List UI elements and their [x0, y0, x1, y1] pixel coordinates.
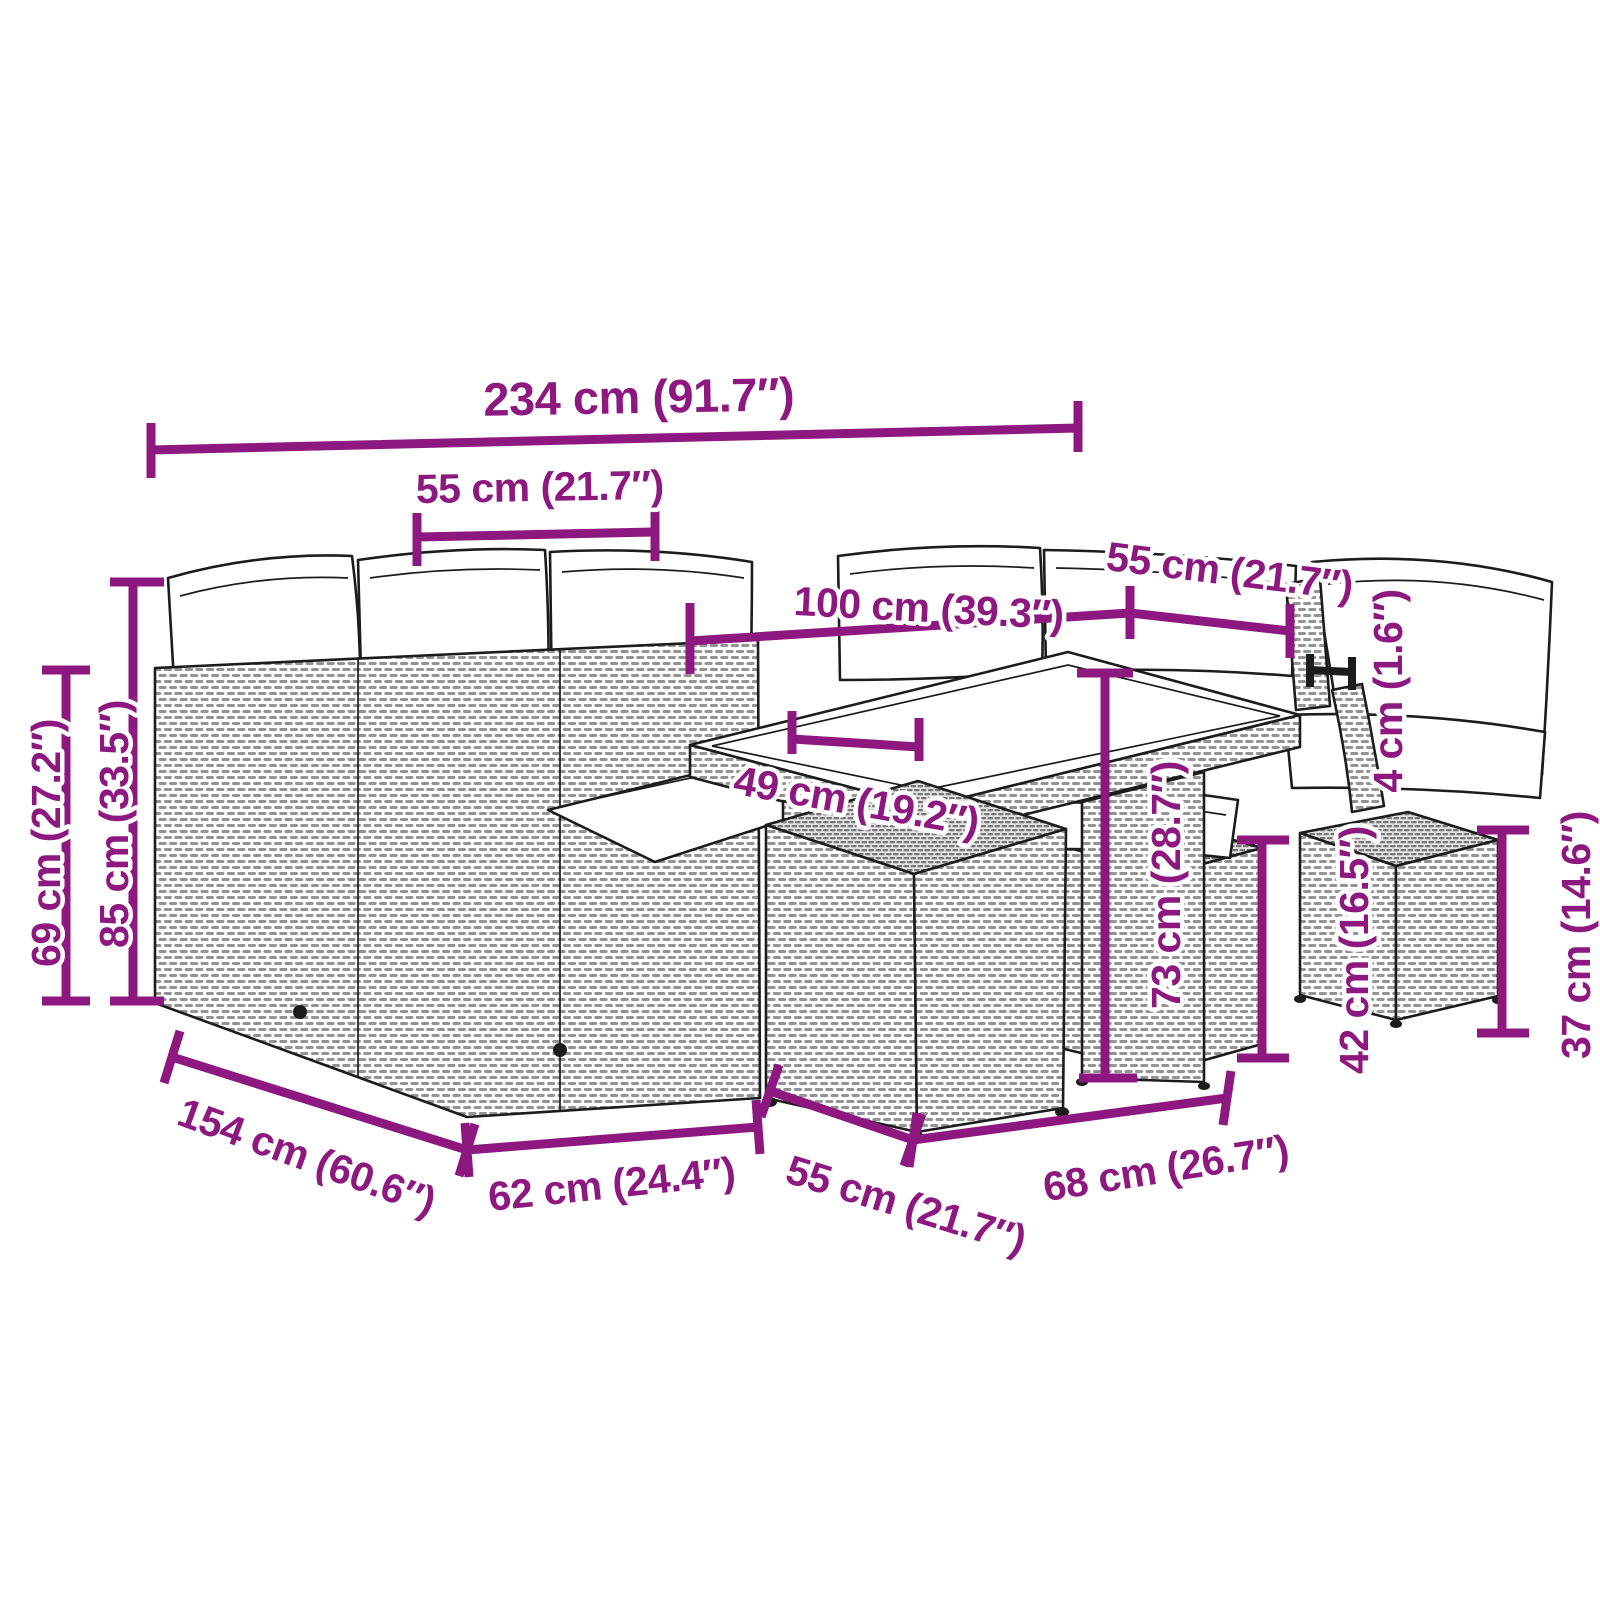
diagram-canvas: 234 cm (91.7″) 55 cm (21.7″) 100 cm (39.…	[0, 0, 1600, 1600]
dim-module-width-left-label: 55 cm (21.7″)	[415, 462, 664, 512]
dim-arm-height: 69 cm (27.2″)	[23, 670, 90, 1001]
dimension-diagram: 234 cm (91.7″) 55 cm (21.7″) 100 cm (39.…	[0, 0, 1600, 1600]
dim-module-depth: 62 cm (24.4″)	[465, 1100, 760, 1220]
dim-table-height-label: 73 cm (28.7″)	[1143, 761, 1189, 1009]
seat-cushion-right	[1285, 714, 1545, 798]
dim-back-height: 85 cm (33.5″)	[91, 582, 164, 1001]
footstool-37	[1294, 812, 1504, 1028]
dim-overall-width: 234 cm (91.7″)	[151, 367, 1078, 478]
dim-stool-depth-label: 68 cm (26.7″)	[1040, 1126, 1292, 1210]
dim-arm-height-label: 69 cm (27.2″)	[23, 719, 69, 967]
dim-module-depth-label: 62 cm (24.4″)	[486, 1148, 737, 1220]
sofa-back-panel	[155, 640, 760, 1117]
dim-overall-depth-label: 154 cm (60.6″)	[172, 1089, 442, 1225]
dim-overall-width-label: 234 cm (91.7″)	[483, 367, 795, 425]
dim-tabletop-thickness-label: 4 cm (1.6″)	[1365, 589, 1411, 792]
dim-back-height-label: 85 cm (33.5″)	[91, 700, 137, 948]
dim-stool-height-label: 42 cm (16.5″)	[1331, 826, 1377, 1074]
dim-footstool-height-label: 37 cm (14.6″)	[1553, 811, 1599, 1059]
